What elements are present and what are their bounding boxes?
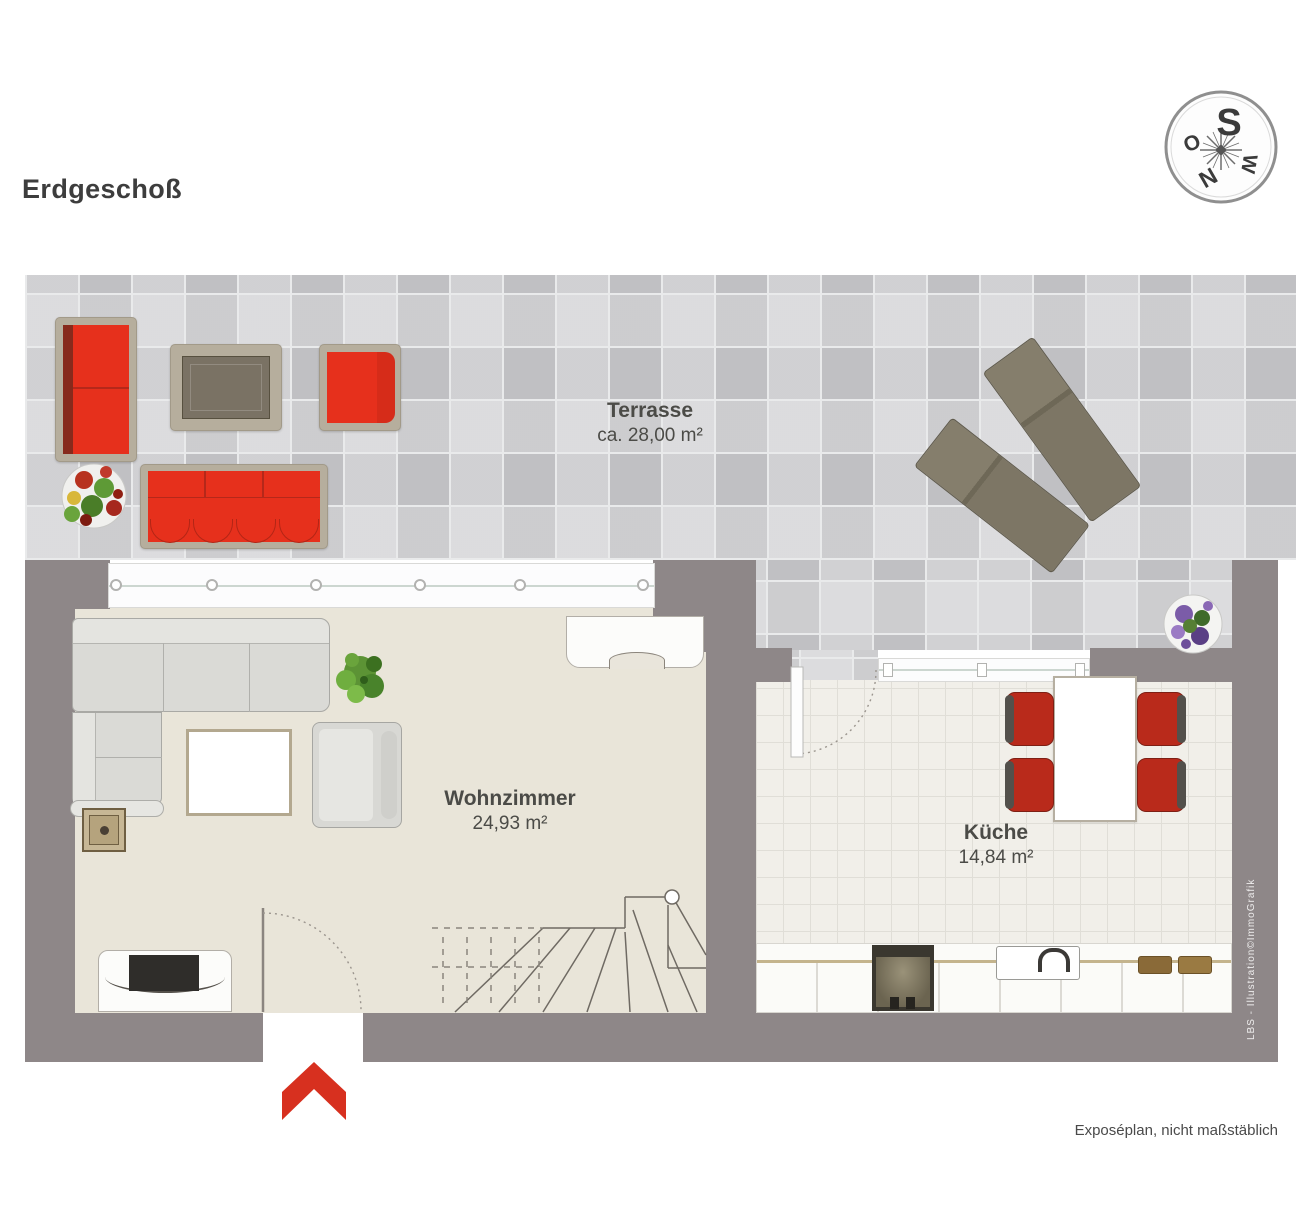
side-stool bbox=[82, 808, 126, 852]
compass-rose-icon: S O W N bbox=[1162, 88, 1280, 206]
corner-sofa-vertical bbox=[72, 712, 162, 804]
cutting-board bbox=[1138, 956, 1172, 974]
room-name: Küche bbox=[959, 820, 1034, 846]
floor-plan: Erdgeschoß S O W N bbox=[0, 0, 1296, 1232]
dining-chair bbox=[1006, 692, 1054, 746]
living-armchair bbox=[312, 722, 402, 828]
terrace-kitchen-door bbox=[748, 655, 893, 765]
room-label-terrasse: Terrasse ca. 28,00 m² bbox=[597, 398, 703, 448]
dining-chair bbox=[1137, 758, 1185, 812]
kitchen-counter bbox=[756, 943, 1232, 1013]
tv-icon bbox=[129, 955, 199, 991]
room-name: Wohnzimmer bbox=[444, 786, 575, 812]
cutting-board bbox=[1178, 956, 1212, 974]
wall-bottom-left bbox=[25, 1013, 263, 1062]
coffee-table bbox=[186, 729, 292, 816]
compass-label-west: W bbox=[1236, 153, 1261, 176]
terrace-sofa-2seat bbox=[55, 317, 137, 462]
room-label-kueche: Küche 14,84 m² bbox=[959, 820, 1034, 870]
dining-chair bbox=[1137, 692, 1185, 746]
room-area: 14,84 m² bbox=[959, 846, 1034, 870]
sideboard bbox=[566, 616, 704, 668]
wall-bottom-right bbox=[363, 1013, 1278, 1062]
terrace-sofa-3seat bbox=[140, 464, 328, 549]
wall-top-left-corner bbox=[25, 560, 110, 609]
sideboard-notch bbox=[609, 652, 665, 669]
dining-chair bbox=[1006, 758, 1054, 812]
illustration-credit: LBS - Illustration©ImmoGrafik bbox=[1246, 879, 1257, 1040]
flower-pot-icon bbox=[1160, 590, 1226, 658]
dining-table bbox=[1053, 676, 1137, 822]
plant-icon bbox=[328, 642, 392, 710]
compass-label-south: S bbox=[1216, 102, 1241, 144]
entrance-door bbox=[255, 895, 370, 1015]
terrace-table bbox=[170, 344, 282, 431]
corner-sofa-horizontal bbox=[72, 618, 330, 712]
entrance-arrow-icon bbox=[282, 1062, 346, 1120]
room-name: Terrasse bbox=[597, 398, 703, 424]
faucet-icon bbox=[1038, 948, 1070, 972]
living-room-window bbox=[108, 563, 655, 608]
wall-left bbox=[25, 560, 75, 1062]
staircase bbox=[425, 885, 715, 1013]
stove bbox=[872, 945, 934, 1011]
terrace-armchair bbox=[319, 344, 401, 431]
room-area: 24,93 m² bbox=[444, 812, 575, 836]
tv-sideboard bbox=[98, 950, 232, 1012]
room-area: ca. 28,00 m² bbox=[597, 424, 703, 448]
page-title: Erdgeschoß bbox=[22, 174, 182, 205]
room-label-wohnzimmer: Wohnzimmer 24,93 m² bbox=[444, 786, 575, 836]
window-glass-line bbox=[109, 585, 654, 587]
flower-pot-icon bbox=[56, 458, 132, 534]
footer-note: Exposéplan, nicht maßstäblich bbox=[1075, 1122, 1278, 1139]
